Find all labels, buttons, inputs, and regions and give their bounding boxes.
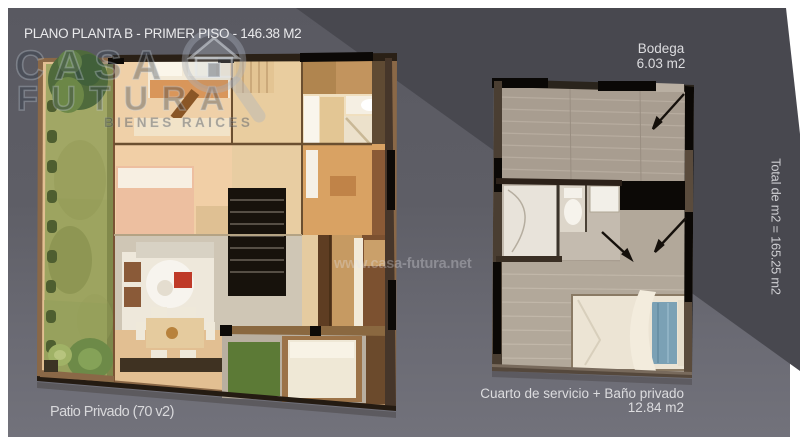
svg-text:BIENES RAICES: BIENES RAICES xyxy=(104,115,253,130)
svg-text:www.casa-futura.net: www.casa-futura.net xyxy=(333,256,472,272)
